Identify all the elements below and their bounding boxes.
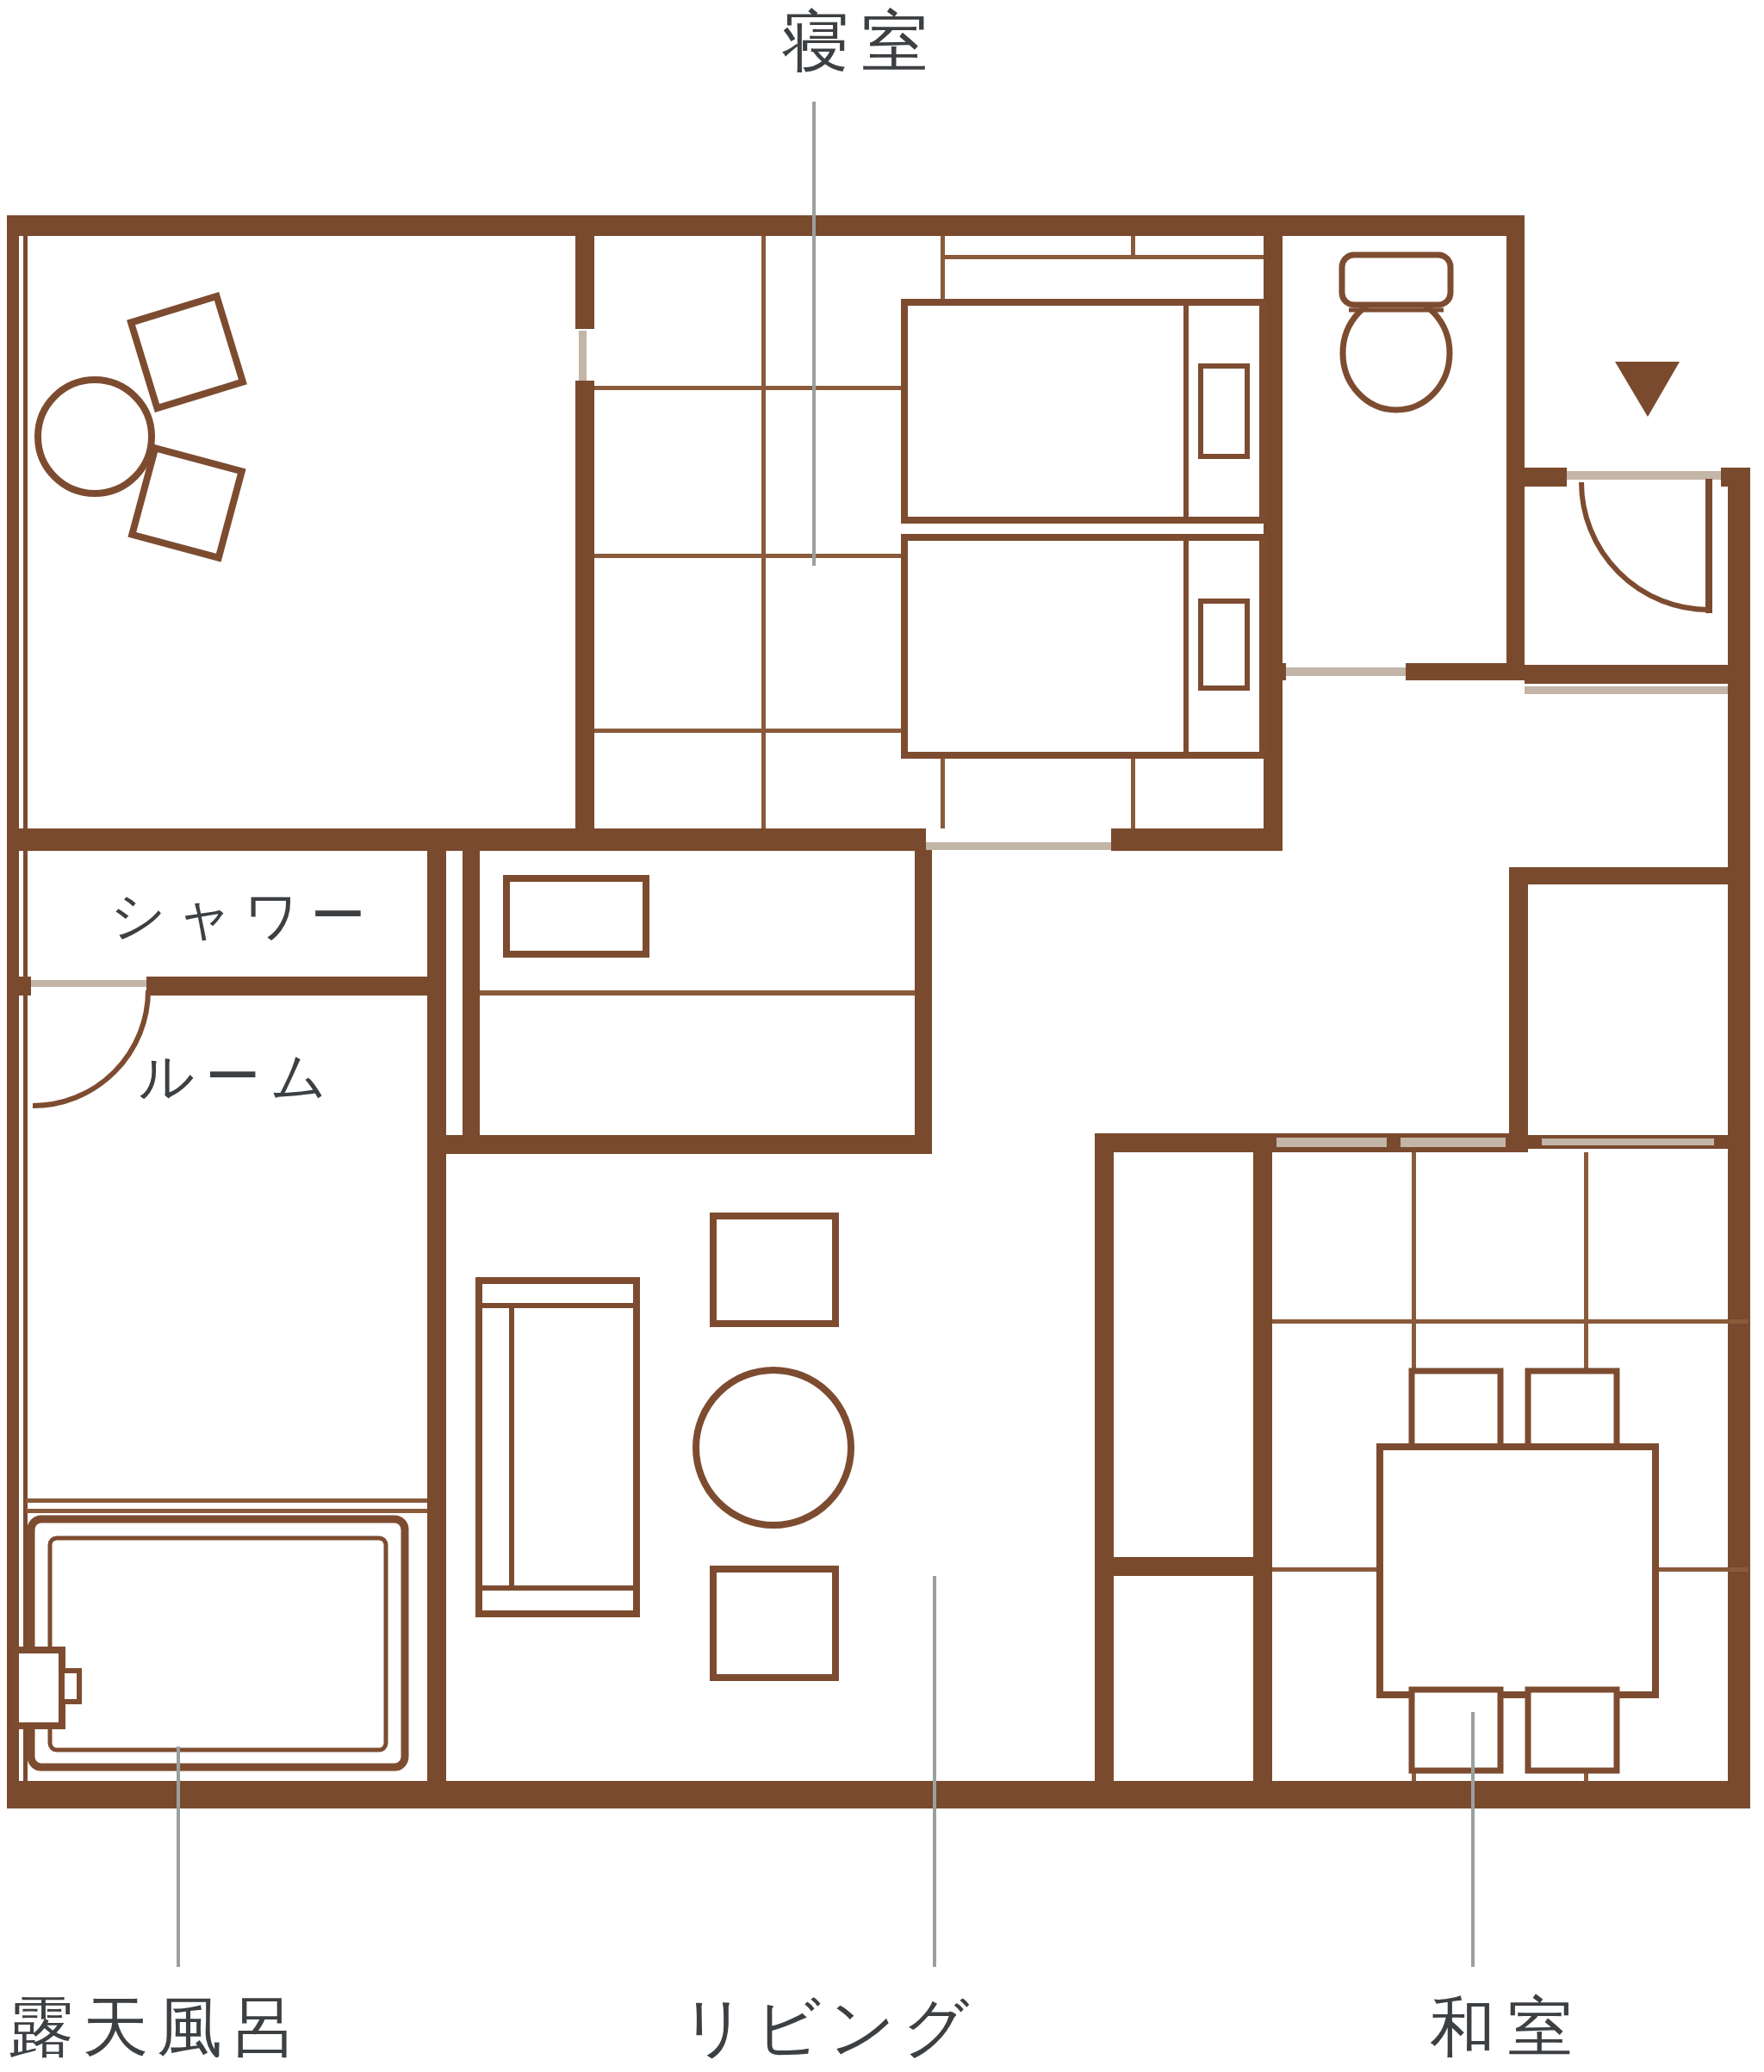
bedroom-tatami-v2a xyxy=(941,236,945,302)
wall-bottom xyxy=(7,1781,1750,1808)
genkan-step xyxy=(1525,686,1728,694)
bedroom-tatami-v3b xyxy=(1131,755,1135,828)
wall-mid-band-b xyxy=(1111,828,1281,851)
wall-oshiire-left xyxy=(1509,867,1528,1152)
stool-bottom-right xyxy=(1528,1690,1617,1771)
wall-closet-bottom xyxy=(435,1135,932,1154)
tub-tap-nub xyxy=(62,1671,79,1702)
toilet-icon xyxy=(1342,255,1450,410)
shower-door-arc xyxy=(33,990,148,1106)
wall-top xyxy=(7,215,1525,236)
wall-entrance-bottom xyxy=(1525,665,1750,684)
wall-shower-bottom-b xyxy=(146,977,446,996)
washitsu-table xyxy=(1380,1447,1655,1695)
sofa-frame xyxy=(479,1281,637,1614)
wall-mid-band-a xyxy=(7,828,926,851)
door-thresholds xyxy=(31,331,1728,1147)
chair-upper xyxy=(131,296,243,408)
tub-tap xyxy=(16,1650,62,1726)
living-round-table xyxy=(696,1370,851,1525)
wall-topleft-room-right-b xyxy=(575,381,594,851)
bedroom-tatami-h3 xyxy=(594,554,904,558)
topleft-room-opening xyxy=(579,331,587,381)
furniture xyxy=(16,255,1712,1771)
bedroom-tatami-v1 xyxy=(761,236,766,828)
stool-top-left xyxy=(1412,1371,1500,1454)
bath-tub xyxy=(16,1519,405,1767)
wall-alcove-divider xyxy=(1095,1557,1272,1576)
round-table xyxy=(38,380,152,493)
closet-counter xyxy=(506,878,646,954)
wall-toilet-bottom-a xyxy=(1264,663,1286,680)
label-living: リビング xyxy=(680,1991,976,2063)
bed-1 xyxy=(904,302,1263,520)
label-bedroom: 寝室 xyxy=(782,4,941,79)
entrance-door-threshold xyxy=(1567,471,1721,480)
bath-deck-line1 xyxy=(26,1498,427,1503)
wall-oshiire-top xyxy=(1509,867,1750,884)
bed-2 xyxy=(904,537,1263,755)
wall-bath-right xyxy=(427,828,446,1791)
wall-topleft-room-right-a xyxy=(575,215,594,329)
stool-bottom-left xyxy=(1412,1690,1500,1771)
entrance-door-leaf xyxy=(1705,479,1712,613)
wall-toilet-right-outer xyxy=(1506,215,1525,680)
chair-lower xyxy=(132,448,241,557)
stool-top-right xyxy=(1528,1371,1617,1454)
wall-toilet-bottom-b xyxy=(1406,663,1525,680)
wall-alcove-right xyxy=(1253,1133,1272,1808)
washitsu-tatami-h1 xyxy=(1272,1319,1748,1324)
washitsu-sliding-door-2 xyxy=(1401,1138,1506,1147)
floor-plan-drawing: 寝室 シャワー ルーム 露天風呂 リビング 和室 xyxy=(0,0,1764,2072)
label-open-air-bath: 露天風呂 xyxy=(9,1991,305,2063)
wall-bedroom-right xyxy=(1264,215,1283,851)
bedroom-tatami-h1 xyxy=(941,255,1264,259)
wall-alcove-left xyxy=(1095,1133,1114,1808)
bedroom-tatami-h4 xyxy=(594,729,904,733)
wall-shower-bottom-a xyxy=(7,977,31,996)
label-shower-line1: シャワー xyxy=(110,885,376,946)
bath-deck-line2 xyxy=(26,1509,427,1513)
bedroom-tatami-v3a xyxy=(1131,236,1135,255)
bed-2-pillow xyxy=(1201,601,1247,688)
oshiire-fusuma xyxy=(1542,1138,1714,1145)
floor-plan: 寝室 シャワー ルーム 露天風呂 リビング 和室 xyxy=(0,0,1764,2072)
washitsu-sliding-door-1 xyxy=(1276,1138,1387,1147)
bed-1-pillow xyxy=(1201,366,1247,456)
closet-shelf-line xyxy=(480,990,915,996)
wall-entrance-top-b xyxy=(1721,468,1750,487)
bedroom-sliding-door xyxy=(926,842,1111,850)
entrance-door-arc xyxy=(1581,482,1709,610)
entrance-arrow-icon xyxy=(1615,362,1680,417)
toilet-tank xyxy=(1342,255,1450,305)
side-table-upper xyxy=(713,1216,835,1324)
toilet-bowl xyxy=(1343,296,1450,410)
label-japanese-room: 和室 xyxy=(1430,1991,1585,2063)
label-shower-line2: ルーム xyxy=(139,1046,338,1107)
wall-left-inner-line xyxy=(23,226,28,1781)
side-table-lower xyxy=(713,1569,835,1678)
wall-closet-right xyxy=(915,848,932,1154)
bedroom-tatami-v2b xyxy=(941,755,945,828)
shower-door-threshold xyxy=(31,980,146,987)
tub-inner xyxy=(50,1538,386,1750)
wall-left xyxy=(7,215,19,1808)
washitsu-set xyxy=(1380,1371,1655,1771)
toilet-door xyxy=(1286,667,1406,676)
wall-entrance-top-a xyxy=(1506,468,1567,487)
wall-closet-left xyxy=(463,848,480,1154)
entrance-door xyxy=(1581,479,1712,613)
bedroom-tatami-h2 xyxy=(594,386,904,390)
living-set xyxy=(479,1216,851,1678)
